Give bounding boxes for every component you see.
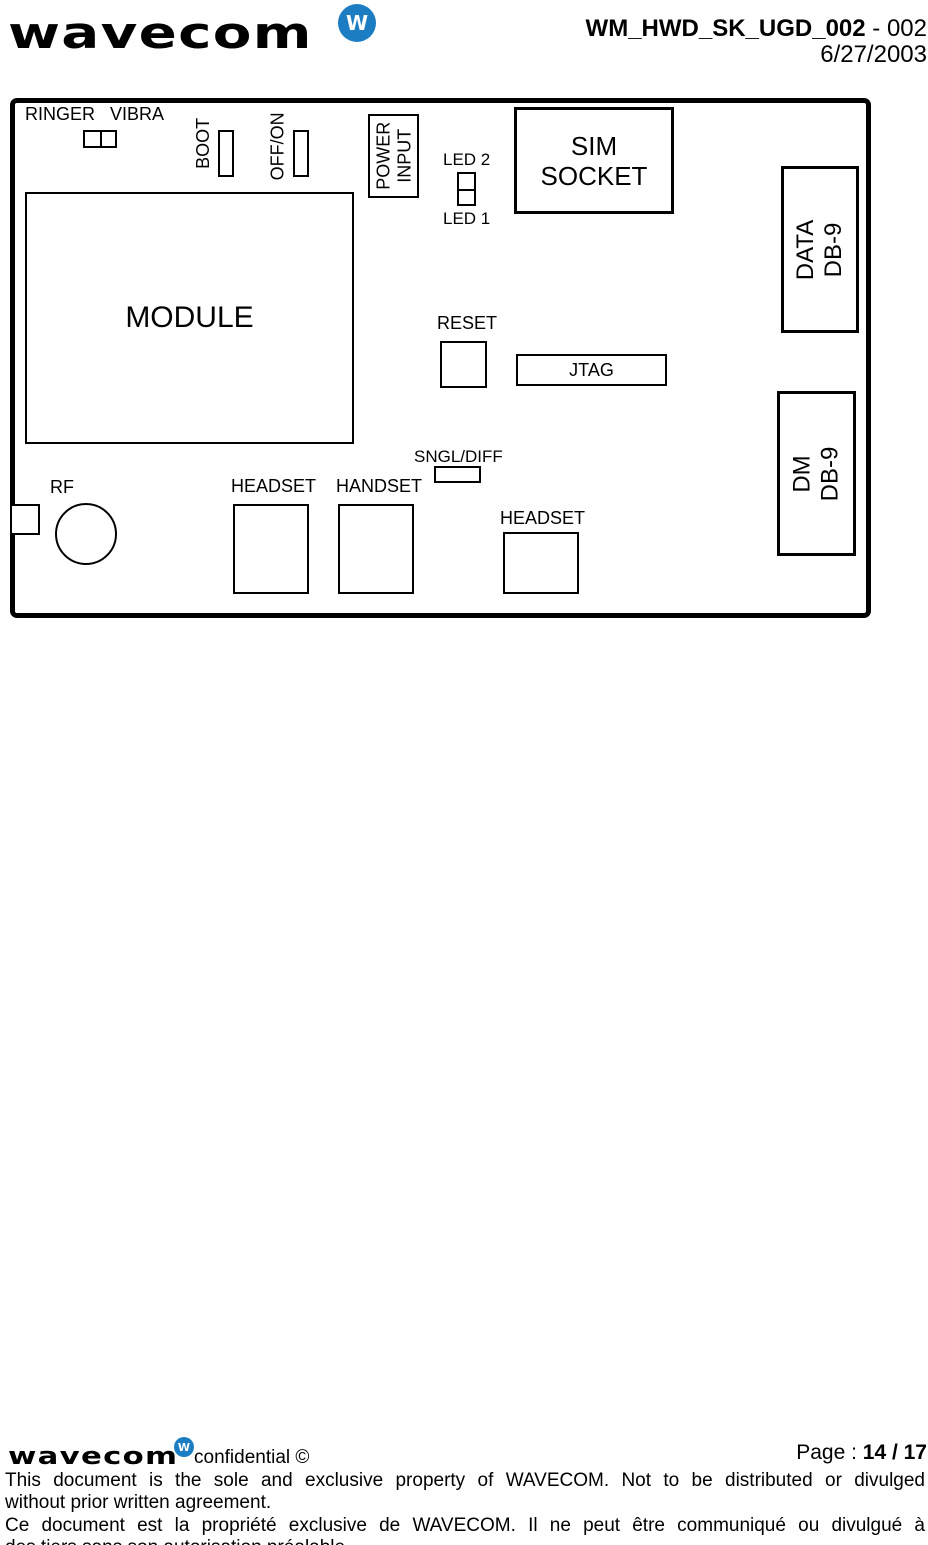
off-on-jumper xyxy=(293,130,309,177)
wavecom-logo: wavecom xyxy=(8,12,313,56)
data-db9-connector: DATA DB-9 xyxy=(781,166,859,333)
off-on-label: OFF/ON xyxy=(267,116,289,176)
module: MODULE xyxy=(25,192,354,444)
ringer-label: RINGER xyxy=(25,105,95,125)
power-input-label-line1: POWER xyxy=(373,122,394,190)
headset-bottom-label: HEADSET xyxy=(500,509,585,529)
legal-en-line2: without prior written agreement. xyxy=(5,1492,925,1514)
doc-code: WM_HWD_SK_UGD_002 xyxy=(586,15,866,42)
dm-db9-label-line2: DB-9 xyxy=(817,446,845,501)
reset-button xyxy=(440,341,487,388)
header-doc-info: WM_HWD_SK_UGD_002 - 002 6/27/2003 xyxy=(450,16,927,68)
handset-jack xyxy=(338,504,414,594)
headset-left-label: HEADSET xyxy=(231,477,316,497)
wavecom-footer-badge-icon: W xyxy=(174,1437,194,1457)
boot-jumper xyxy=(218,130,234,177)
ringer-vibra-jumper xyxy=(83,130,117,148)
led2-label: LED 2 xyxy=(443,151,490,170)
wavecom-badge-icon: W xyxy=(338,4,376,42)
sngl-diff-jumper xyxy=(434,466,481,483)
dm-db9-label-line1: DM xyxy=(789,446,817,501)
led-stack xyxy=(457,172,476,206)
page-value: 14 / 17 xyxy=(863,1441,927,1464)
handset-label: HANDSET xyxy=(336,477,422,497)
document-page: wavecom W WM_HWD_SK_UGD_002 - 002 6/27/2… xyxy=(0,0,928,1545)
power-input-label-line2: INPUT xyxy=(394,122,415,190)
jtag-connector: JTAG xyxy=(516,354,667,386)
confidential-notice: confidential © xyxy=(194,1447,309,1469)
jumper-divider xyxy=(100,132,102,146)
legal-en-line1: This document is the sole and exclusive … xyxy=(5,1470,925,1492)
rf-label: RF xyxy=(50,478,74,498)
dm-db9-connector: DM DB-9 xyxy=(777,391,856,556)
legal-fr-line1: Ce document est la propriété exclusive d… xyxy=(5,1515,925,1537)
page-number: Page : 14 / 17 xyxy=(600,1441,927,1465)
sngl-diff-label: SNGL/DIFF xyxy=(414,448,503,467)
led-divider xyxy=(459,189,474,191)
boot-label: BOOT xyxy=(192,117,214,169)
wavecom-footer-logo: wavecom xyxy=(8,1444,178,1468)
rf-antenna-connector xyxy=(55,503,117,565)
headset-left-jack xyxy=(233,504,309,594)
power-input-connector: POWER INPUT xyxy=(368,114,419,198)
sim-socket-label-line1: SIM xyxy=(541,131,648,161)
doc-date: 6/27/2003 xyxy=(450,42,927,68)
headset-bottom-jack xyxy=(503,532,579,594)
jtag-label: JTAG xyxy=(569,360,614,381)
data-db9-label-line1: DATA xyxy=(792,219,820,279)
vibra-label: VIBRA xyxy=(110,105,164,125)
reset-label: RESET xyxy=(437,314,497,334)
sim-socket-label-line2: SOCKET xyxy=(541,161,648,191)
legal-fr-line2: des tiers sans son autorisation préalabl… xyxy=(5,1537,925,1545)
led1-label: LED 1 xyxy=(443,210,490,229)
page-label: Page : xyxy=(796,1441,863,1464)
doc-reference: WM_HWD_SK_UGD_002 - 002 xyxy=(450,16,927,42)
sim-socket: SIM SOCKET xyxy=(514,107,674,214)
doc-code-suffix: - 002 xyxy=(866,15,927,42)
module-label: MODULE xyxy=(125,301,253,335)
data-db9-label-line2: DB-9 xyxy=(820,219,848,279)
rf-edge-connector xyxy=(10,504,40,535)
